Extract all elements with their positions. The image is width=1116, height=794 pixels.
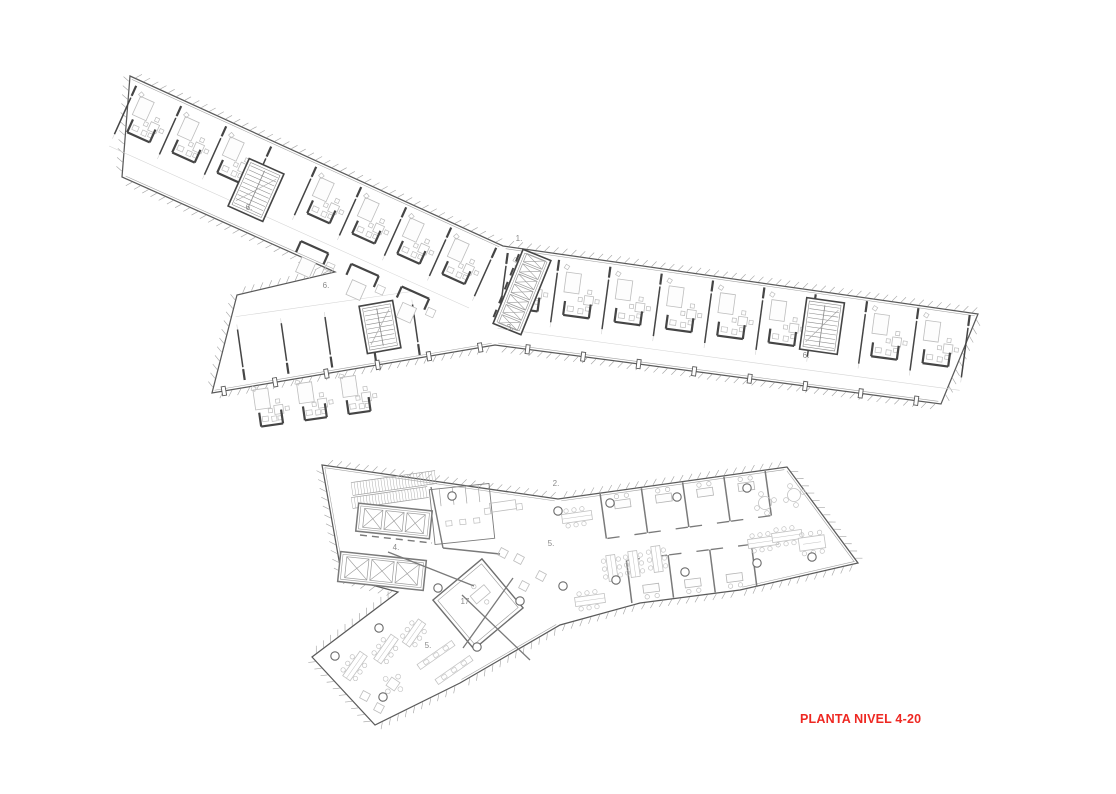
building-outline (312, 465, 858, 725)
room-furniture (251, 382, 292, 428)
stair-core (800, 298, 845, 355)
room-number-label: 3. (507, 323, 514, 332)
plan-title-label: PLANTA NIVEL 4-20 (800, 712, 921, 726)
room-number-label: 2. (553, 479, 560, 488)
room-number-label: 6. (803, 351, 810, 360)
room-number-label: 17. (460, 597, 471, 606)
room-furniture (294, 375, 335, 421)
drawing-sheet: 6.1.3.6.6.2.4.5.17.5. PLANTA NIVEL 4-20 (0, 0, 1116, 794)
room-number-label: 1. (516, 234, 523, 243)
upper-floor-plan (109, 74, 980, 427)
room-number-label: 6. (246, 203, 253, 212)
stair-core (359, 300, 401, 353)
room-number-label: 4. (393, 543, 400, 552)
lower-floor-plan (308, 460, 862, 729)
room-number-label: 5. (548, 539, 555, 548)
floor-plan-drawing: 6.1.3.6.6.2.4.5.17.5. (0, 0, 1116, 794)
room-number-label: 5. (425, 641, 432, 650)
room-furniture (338, 369, 379, 415)
room-number-label: 6. (323, 281, 330, 290)
